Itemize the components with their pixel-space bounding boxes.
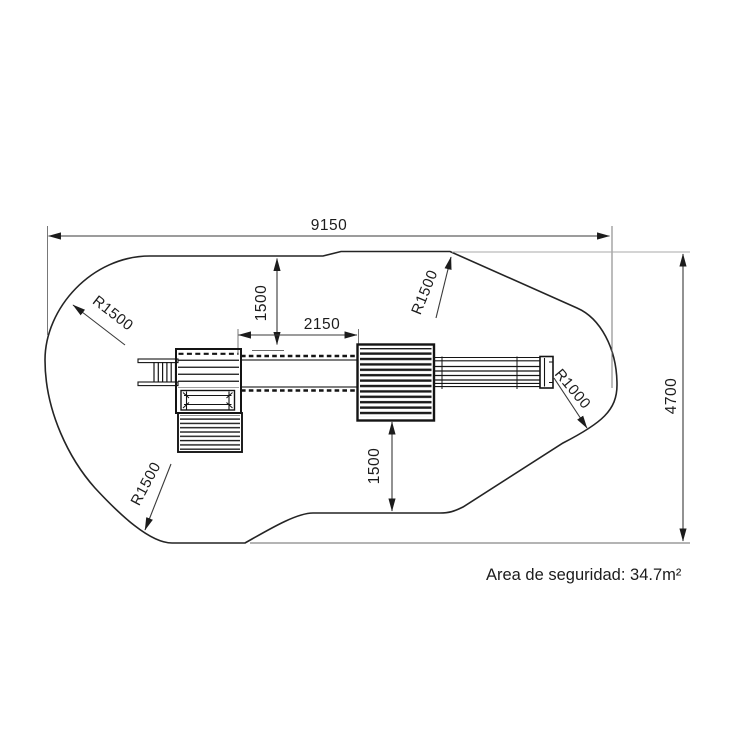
dim-label-2150: 2150 [304,316,340,333]
radius-right: R1000 [551,366,594,428]
ladder-rungs [154,362,176,382]
platform-deck-hatch [178,355,239,389]
safety-area-caption: Area de seguridad: 34.7m² [486,566,682,584]
leader-r1500-top-middle [436,257,451,318]
dimension-1500-bottom: 1500 [366,422,392,511]
stairs-hatch [180,415,240,450]
platform-tower [176,349,241,413]
radius-label-top-left: R1500 [89,292,136,334]
dimension-4700: 4700 [663,254,683,541]
dim-label-1500-bottom: 1500 [366,448,383,484]
play-equipment [138,345,553,453]
drawing-canvas: 9150 4700 1500 2150 1500 R1500 R1500 R15… [0,0,750,750]
radius-label-top-middle: R1500 [408,267,441,317]
radius-top-left: R1500 [73,292,136,345]
platform-lower-frame [181,391,235,411]
tower-roof-hatch [360,348,432,417]
dimension-1500-top: 1500 [253,259,277,345]
ladder [138,359,178,386]
slide [434,357,553,390]
radius-label-bottom-left: R1500 [128,459,165,508]
dim-label-1500-top: 1500 [253,285,270,321]
bridge [241,356,358,391]
central-tower [358,345,435,421]
stairs [178,413,242,452]
plan-drawing: 9150 4700 1500 2150 1500 R1500 R1500 R15… [0,0,750,750]
radius-top-middle: R1500 [408,257,451,318]
slide-end-cap [540,357,553,389]
dim-label-9150: 9150 [311,217,347,234]
dimension-9150: 9150 [49,217,610,236]
dim-label-4700: 4700 [663,378,680,414]
radius-bottom-left: R1500 [128,459,171,530]
